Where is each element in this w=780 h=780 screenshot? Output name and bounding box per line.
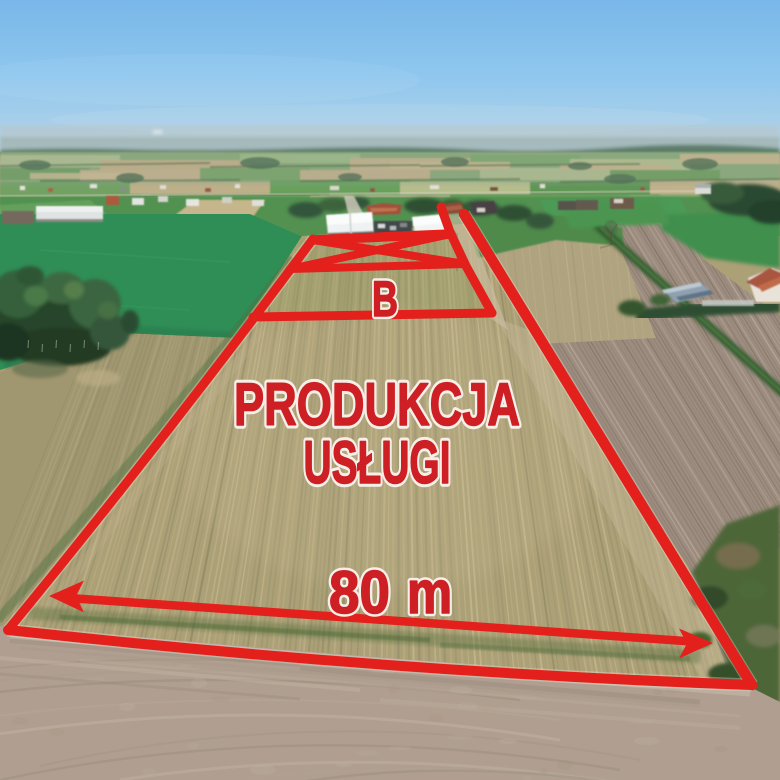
svg-text:B: B — [372, 272, 398, 327]
svg-text:PRODUKCJA: PRODUKCJA — [234, 371, 520, 438]
svg-text:m: m — [407, 559, 452, 626]
svg-text:80: 80 — [329, 559, 390, 626]
svg-text:USŁUGI: USŁUGI — [304, 429, 451, 496]
